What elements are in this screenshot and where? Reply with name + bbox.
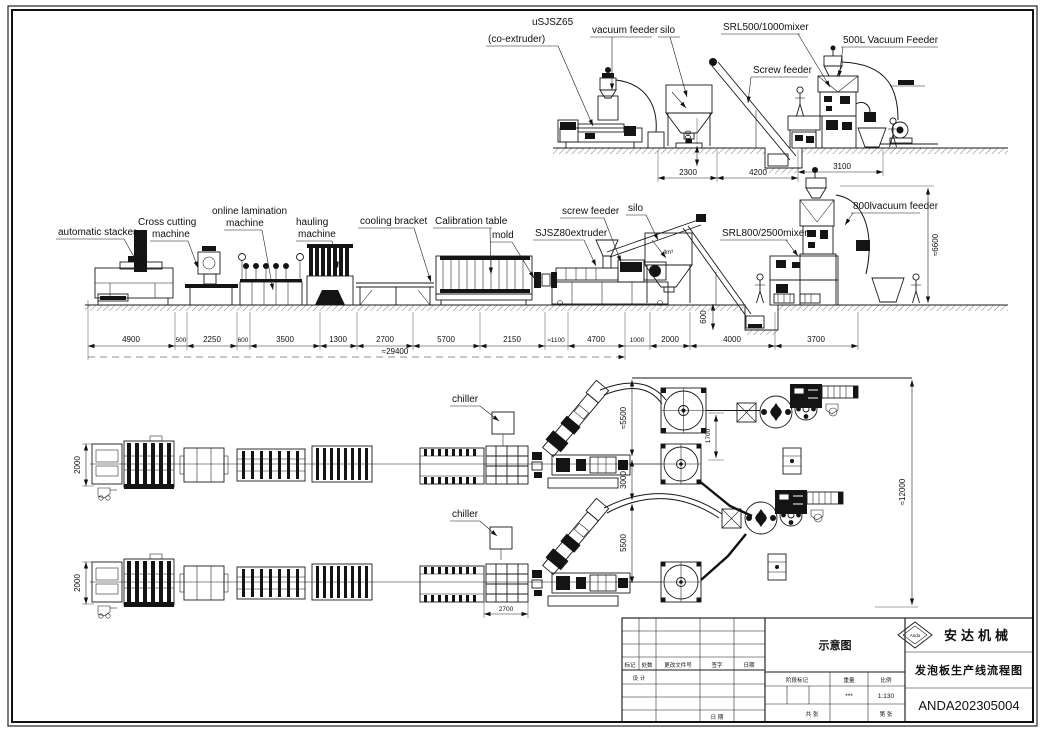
dim-5500-top: ≈5500	[619, 406, 628, 429]
side-view-labels: automatic stacker Cross cutting machine …	[56, 201, 939, 290]
scale-label: 比例	[880, 676, 892, 684]
title-block: 标记 处数 更改文件号 签字 日期 设 计 日 期 示意图 阶段标记 重量 比例…	[622, 618, 1033, 722]
view-name: 示意图	[818, 638, 852, 652]
revision-grid	[622, 618, 765, 722]
plan-cluster-1	[737, 384, 858, 474]
pipe	[604, 494, 722, 514]
pit-screw-incline	[683, 226, 764, 328]
dim-2700-plan: 2700	[499, 606, 514, 613]
top-view: 2300 4200 3100 600 uSJSZ65 (co-extruder)…	[486, 17, 1008, 182]
label-automatic-stacker: automatic stacker	[58, 227, 137, 238]
dim-2000: 2000	[661, 335, 679, 344]
silo-volume-text: 4m³	[663, 250, 673, 256]
drawing-sheet: 2300 4200 3100 600 uSJSZ65 (co-extruder)…	[0, 0, 1045, 732]
sheet-index: 第 张	[880, 710, 893, 718]
label-calibration-table: Calibration table	[435, 216, 508, 227]
dim-2000-line1: 2000	[73, 456, 82, 474]
dim-4000: 4000	[723, 335, 741, 344]
overall-depth-dimension: ≈12000	[875, 380, 918, 607]
dim-6600: ≈6600	[931, 233, 940, 256]
label-chiller-2: chiller	[452, 509, 479, 520]
label-screw-feeder-side: screw feeder	[562, 206, 620, 217]
stage-label: 阶段标记	[786, 676, 809, 684]
drawing-title: 发泡板生产线流程图	[914, 663, 1023, 677]
mixer-tower-srl500	[788, 46, 925, 149]
dim-4200: 4200	[749, 168, 767, 177]
plan-line-2	[90, 498, 662, 619]
engineering-drawing: 2300 4200 3100 600 uSJSZ65 (co-extruder)…	[0, 0, 1045, 732]
hauling-machine	[307, 244, 353, 305]
dim-1300: 1300	[329, 335, 347, 344]
label-500l-vacuum-feeder: 500L Vacuum Feeder	[843, 35, 939, 46]
plan-silo-1	[661, 388, 706, 433]
rev-col-file: 更改文件号	[664, 661, 692, 669]
dim-3100: 3100	[833, 162, 851, 171]
drawing-number: ANDA202305004	[918, 698, 1019, 713]
label-co-extruder: (co-extruder)	[488, 34, 545, 45]
calibration-table-machine	[436, 256, 532, 305]
label-usjsz65: uSJSZ65	[532, 17, 574, 28]
label-silo-top: silo	[660, 25, 675, 36]
label-silo-side: silo	[628, 203, 643, 214]
logo-text: Anda	[909, 633, 921, 638]
label-lamination-1: online lamination	[212, 206, 287, 217]
ground-hatch	[553, 149, 765, 155]
dim-3500: 3500	[276, 335, 294, 344]
label-screw-feeder-top: Screw feeder	[753, 65, 813, 76]
side-view: 4m³ ≈6600	[56, 167, 1008, 360]
weight-label: 重量	[843, 676, 855, 684]
rev-col-count: 处数	[641, 661, 653, 669]
dim-pit-600: 600	[699, 310, 708, 324]
sheet-total: 共 张	[806, 710, 819, 718]
dim-5500-bottom: 5500	[619, 534, 628, 552]
dim-2700: 2700	[376, 335, 394, 344]
tank-length-dimension: 2700	[484, 600, 528, 618]
dim-3000: 3000	[619, 471, 628, 489]
label-sjsz80-extruder: SJSZ80extruder	[535, 228, 608, 239]
dim-2150: 2150	[503, 335, 521, 344]
weight-value: ***	[845, 693, 853, 700]
cooling-bracket-machine	[356, 283, 434, 305]
plan-silo-2	[661, 444, 701, 484]
label-800l-vacuum-feeder: 800lvacuum feeder	[853, 201, 939, 212]
label-chiller-1: chiller	[452, 394, 479, 405]
scale-value: 1:130	[878, 693, 895, 700]
label-cooling-bracket: cooling bracket	[360, 216, 427, 227]
dim-1100: ≈1100	[547, 337, 565, 344]
dim-5700: 5700	[437, 335, 455, 344]
pipe	[607, 499, 719, 518]
offset-dimensions: ≈5500 3000 5500	[619, 380, 632, 583]
silo-offset-dimension: 1700	[705, 413, 724, 460]
dim-1000: 1000	[630, 337, 645, 344]
rev-col-mark: 标记	[624, 661, 636, 669]
dim-2000-line2: 2000	[73, 574, 82, 592]
feed-branch	[701, 534, 746, 580]
plan-silo-3	[661, 562, 701, 602]
label-mold: mold	[492, 230, 514, 241]
dim-600: 600	[238, 337, 249, 344]
dim-12000: ≈12000	[898, 478, 907, 505]
dim-1700: 1700	[705, 428, 712, 443]
dim-2250: 2250	[203, 335, 221, 344]
dim-4700: 4700	[587, 335, 605, 344]
dim-total: ≈29400	[382, 347, 409, 356]
date-label: 日 期	[711, 714, 724, 721]
label-srl800-mixer: SRL800/2500mixer	[722, 228, 808, 239]
label-lamination-2: machine	[226, 218, 264, 229]
company-logo: Anda	[898, 622, 932, 648]
pipe	[604, 389, 662, 404]
dim-2300: 2300	[679, 168, 697, 177]
chiller-2: chiller	[450, 509, 512, 560]
company-name: 安达机械	[944, 628, 1012, 644]
label-cross-cutting-2: machine	[152, 229, 190, 240]
dim-500: 500	[176, 337, 187, 344]
design-label: 设 计	[633, 674, 646, 682]
rev-col-sign: 签字	[711, 661, 723, 669]
plan-cluster-2	[722, 490, 843, 580]
line2-width-dimension: 2000	[73, 562, 94, 604]
plan-line-1	[90, 380, 662, 501]
plan-view: 2000 2000 chiller chiller	[73, 378, 918, 618]
chiller-1: chiller	[450, 394, 514, 446]
rev-col-date: 日期	[743, 662, 755, 669]
screw-feeder-incline	[607, 214, 706, 257]
dim-4900: 4900	[122, 335, 140, 344]
co-extruder-machine	[558, 67, 664, 148]
label-hauling-2: machine	[298, 229, 336, 240]
label-srl500-mixer: SRL500/1000mixer	[723, 22, 809, 33]
dim-3700: 3700	[807, 335, 825, 344]
label-hauling-1: hauling	[296, 217, 328, 228]
dim-pit-600-top: 600	[684, 130, 693, 144]
label-cross-cutting-1: Cross cutting	[138, 217, 196, 228]
mold-machine	[534, 272, 557, 288]
label-vacuum-feeder-top: vacuum feeder	[592, 25, 659, 36]
line1-width-dimension: 2000	[73, 444, 94, 486]
